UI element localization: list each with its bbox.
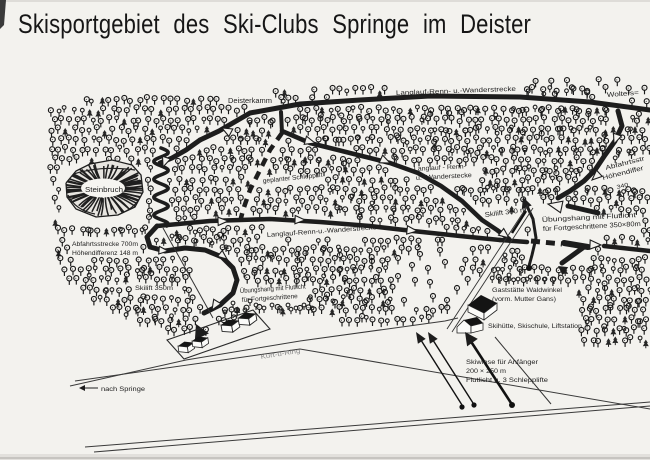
svg-text:Skisportgebiet des Ski-Clubs S: Skisportgebiet des Ski-Clubs Springe im … bbox=[18, 9, 531, 39]
svg-text:Skihütte, Skischule, Liftstati: Skihütte, Skischule, Liftstation bbox=[488, 323, 582, 330]
svg-text:Skiwiese für Anfänger: Skiwiese für Anfänger bbox=[466, 359, 539, 366]
svg-text:Gaststätte Waldwinkel: Gaststätte Waldwinkel bbox=[492, 287, 562, 294]
svg-text:Flutlicht u. 3 Schlepplifte: Flutlicht u. 3 Schlepplifte bbox=[466, 377, 548, 384]
svg-text:Abfahrtsstrecke 700m: Abfahrtsstrecke 700m bbox=[72, 241, 138, 248]
svg-text:Skilift 350m: Skilift 350m bbox=[135, 285, 173, 292]
svg-text:200 × 250 m: 200 × 250 m bbox=[466, 368, 506, 375]
svg-text:Steinbruch: Steinbruch bbox=[85, 187, 123, 194]
svg-text:Deisterkamm: Deisterkamm bbox=[228, 98, 272, 105]
svg-text:Höhendifferenz 148 m: Höhendifferenz 148 m bbox=[72, 250, 138, 257]
svg-text:nach Springe: nach Springe bbox=[101, 386, 145, 393]
svg-text:(vorm. Mutter Gans): (vorm. Mutter Gans) bbox=[492, 296, 556, 303]
